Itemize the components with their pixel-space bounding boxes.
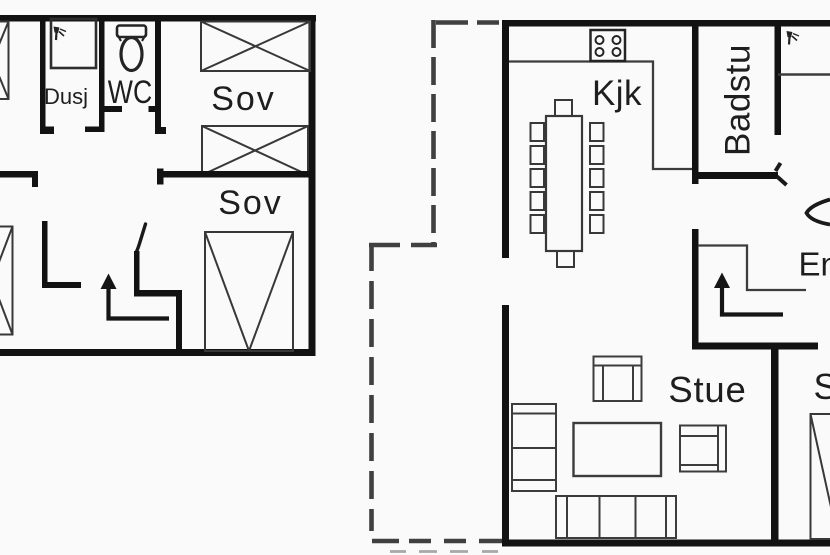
svg-text:Badstu: Badstu <box>719 44 758 156</box>
svg-text:Kjk: Kjk <box>592 74 642 113</box>
svg-text:Sov: Sov <box>814 366 830 407</box>
svg-text:Entr: Entr <box>799 246 830 283</box>
svg-text:WC: WC <box>108 75 152 111</box>
svg-text:Dusj: Dusj <box>44 84 88 109</box>
svg-text:Sov: Sov <box>211 80 276 118</box>
svg-text:Stue: Stue <box>668 369 746 410</box>
svg-text:Sov: Sov <box>218 184 283 222</box>
